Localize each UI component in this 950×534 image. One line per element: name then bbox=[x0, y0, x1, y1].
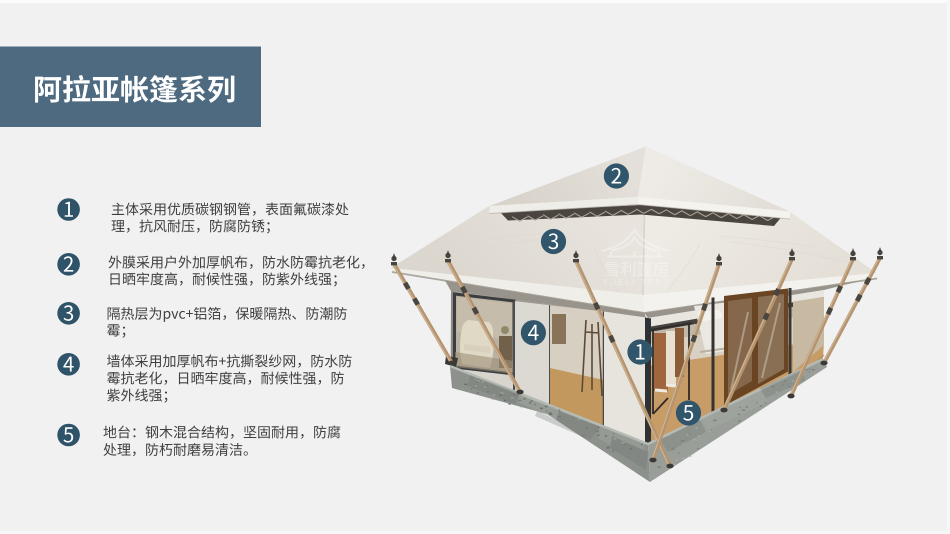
svg-text:YUELI TENT: YUELI TENT bbox=[602, 278, 670, 287]
